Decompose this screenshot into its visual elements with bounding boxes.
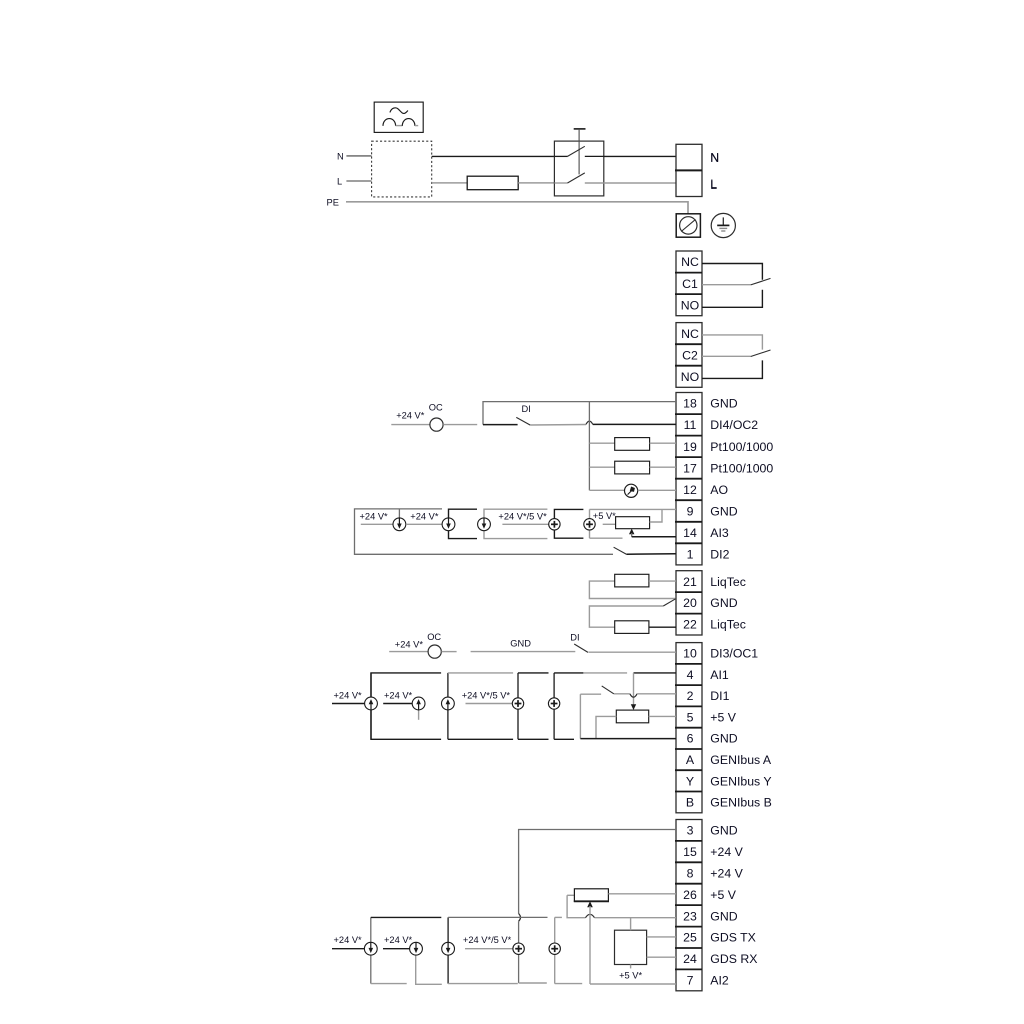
svg-text:LiqTec: LiqTec (710, 575, 746, 589)
svg-text:+5 V*: +5 V* (619, 971, 642, 981)
svg-text:21: 21 (683, 575, 697, 589)
svg-text:12: 12 (683, 483, 697, 497)
svg-text:N: N (337, 151, 344, 161)
svg-text:NC: NC (681, 255, 699, 269)
svg-text:+24 V*: +24 V* (395, 639, 424, 649)
svg-text:NO: NO (681, 370, 699, 384)
svg-text:GND: GND (710, 596, 737, 610)
svg-text:C2: C2 (682, 348, 698, 362)
svg-text:15: 15 (683, 845, 697, 859)
svg-text:DI: DI (522, 404, 531, 414)
svg-text:GDS TX: GDS TX (710, 931, 756, 945)
svg-text:19: 19 (683, 440, 697, 454)
svg-text:18: 18 (683, 397, 697, 411)
svg-text:AO: AO (710, 483, 728, 497)
svg-text:+24 V*: +24 V* (384, 690, 413, 700)
svg-text:NO: NO (681, 298, 699, 312)
svg-text:8: 8 (687, 866, 694, 880)
svg-text:2: 2 (687, 689, 694, 703)
svg-text:GDS RX: GDS RX (710, 952, 757, 966)
svg-text:GND: GND (710, 732, 737, 746)
svg-text:L: L (337, 177, 342, 187)
svg-text:Pt100/1000: Pt100/1000 (710, 440, 773, 454)
svg-text:AI3: AI3 (710, 526, 729, 540)
svg-text:AI1: AI1 (710, 668, 729, 682)
svg-text:5: 5 (687, 711, 694, 725)
svg-text:DI2: DI2 (710, 548, 729, 562)
svg-text:AI2: AI2 (710, 974, 729, 988)
svg-text:23: 23 (683, 909, 697, 923)
svg-text:20: 20 (683, 596, 697, 610)
svg-text:GENIbus B: GENIbus B (710, 796, 772, 810)
svg-text:10: 10 (683, 647, 697, 661)
svg-text:DI3/OC1: DI3/OC1 (710, 647, 758, 661)
svg-text:1: 1 (687, 548, 694, 562)
svg-text:+24 V*/5 V*: +24 V*/5 V* (498, 511, 547, 521)
svg-text:+24 V*: +24 V* (396, 411, 425, 421)
svg-text:+5 V: +5 V (710, 888, 736, 902)
svg-text:OC: OC (429, 402, 443, 412)
svg-text:9: 9 (687, 504, 694, 518)
svg-text:+24 V*: +24 V* (334, 690, 363, 700)
svg-text:N: N (710, 151, 719, 165)
svg-text:17: 17 (683, 461, 697, 475)
svg-text:GENIbus Y: GENIbus Y (710, 774, 771, 788)
svg-text:LiqTec: LiqTec (710, 618, 746, 632)
svg-text:+24 V*: +24 V* (360, 511, 389, 521)
svg-text:+24 V*/5 V*: +24 V*/5 V* (462, 690, 511, 700)
svg-text:+5 V: +5 V (710, 711, 736, 725)
svg-text:26: 26 (683, 888, 697, 902)
svg-text:+24 V*: +24 V* (410, 511, 439, 521)
svg-text:11: 11 (684, 418, 697, 432)
svg-text:Y: Y (686, 774, 694, 788)
svg-text:+24 V: +24 V (710, 866, 743, 880)
svg-text:GND: GND (710, 824, 737, 838)
svg-text:24: 24 (683, 952, 697, 966)
svg-text:GND: GND (710, 909, 737, 923)
svg-text:3: 3 (687, 824, 694, 838)
svg-text:Pt100/1000: Pt100/1000 (710, 461, 773, 475)
svg-text:DI4/OC2: DI4/OC2 (710, 418, 758, 432)
svg-text:+24 V*: +24 V* (384, 935, 413, 945)
svg-text:25: 25 (683, 931, 697, 945)
svg-text:7: 7 (687, 974, 694, 988)
svg-text:L: L (710, 178, 717, 192)
svg-text:PE: PE (327, 197, 339, 207)
svg-text:A: A (686, 753, 695, 767)
svg-text:+24 V: +24 V (710, 845, 743, 859)
svg-text:+5 V*: +5 V* (593, 511, 616, 521)
svg-text:6: 6 (687, 732, 694, 746)
svg-text:GND: GND (710, 504, 737, 518)
svg-text:DI: DI (570, 632, 579, 642)
svg-text:GENIbus A: GENIbus A (710, 753, 772, 767)
svg-text:NC: NC (681, 327, 699, 341)
svg-text:GND: GND (510, 639, 531, 649)
svg-text:14: 14 (683, 526, 697, 540)
svg-text:22: 22 (683, 618, 697, 632)
svg-text:GND: GND (710, 397, 737, 411)
svg-text:4: 4 (687, 668, 694, 682)
svg-text:C1: C1 (682, 277, 698, 291)
svg-text:B: B (686, 796, 694, 810)
svg-text:+24 V*: +24 V* (334, 935, 363, 945)
svg-text:OC: OC (427, 632, 441, 642)
svg-text:+24 V*/5 V*: +24 V*/5 V* (463, 935, 512, 945)
svg-text:DI1: DI1 (710, 689, 729, 703)
